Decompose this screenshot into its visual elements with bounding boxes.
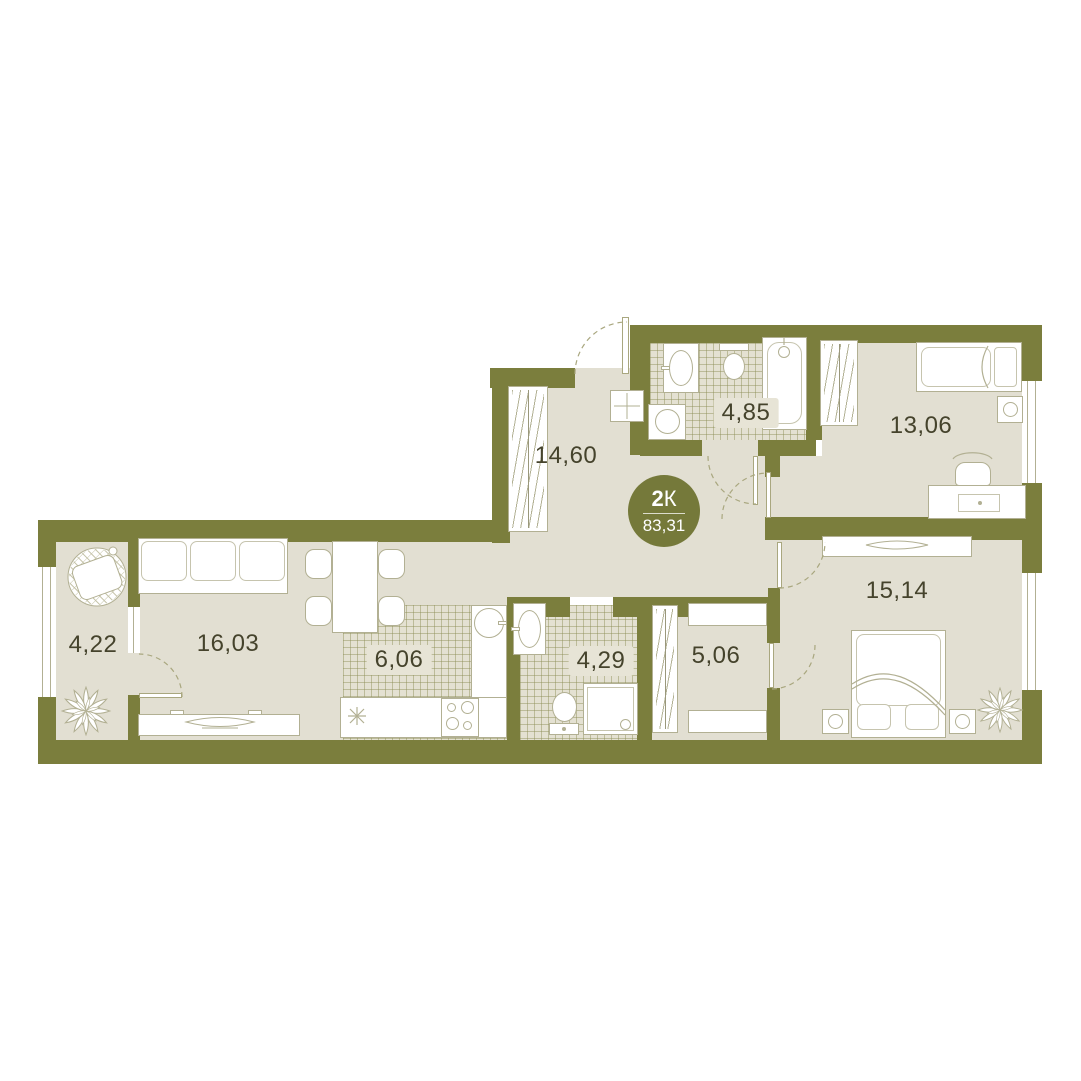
wall bbox=[767, 617, 780, 643]
floor-bedroom-top-entry bbox=[780, 456, 822, 517]
badge-divider bbox=[643, 513, 685, 514]
bed-blanket bbox=[856, 634, 941, 706]
room-area-label-bathroom-small: 4,29 bbox=[569, 646, 634, 676]
wall bbox=[38, 740, 1042, 764]
wardrobe-rail bbox=[665, 609, 666, 729]
wall bbox=[767, 688, 780, 740]
toilet-icon bbox=[552, 692, 577, 722]
desk-chair bbox=[955, 462, 991, 486]
room-area-label-living-room: 16,03 bbox=[197, 630, 260, 658]
plan-total-area: 83,31 bbox=[643, 517, 686, 536]
living-tv-stand bbox=[138, 714, 300, 736]
kitchen-tap bbox=[498, 621, 507, 625]
washing-machine-drum bbox=[655, 409, 680, 434]
dining-chair bbox=[378, 549, 405, 579]
stove-burner bbox=[446, 717, 459, 730]
room-area-label-balcony: 4,22 bbox=[69, 631, 118, 659]
plan-type-label: 2К bbox=[651, 487, 676, 511]
wardrobe-rail bbox=[839, 344, 840, 422]
closet-cabinet-top bbox=[688, 603, 767, 626]
stove-burner bbox=[461, 701, 474, 714]
plan-type-badge: 2К 83,31 bbox=[628, 475, 700, 547]
wall bbox=[640, 440, 702, 456]
nightstand-lamp bbox=[1003, 402, 1018, 417]
nightstand-lamp bbox=[828, 714, 843, 729]
wall bbox=[1022, 325, 1042, 381]
floor-bath-threshold bbox=[702, 440, 758, 456]
dining-chair bbox=[305, 549, 332, 579]
toilet-button bbox=[562, 727, 566, 731]
room-area-label-bedroom-top: 13,06 bbox=[890, 412, 953, 440]
closet-door-leaf bbox=[769, 643, 774, 688]
bedroom-bottom-door-leaf bbox=[777, 542, 782, 588]
room-area-label-hallway: 14,60 bbox=[535, 442, 598, 470]
bathroom-main-door-leaf bbox=[753, 456, 758, 505]
desk-knob bbox=[978, 501, 982, 505]
sofa-cushion bbox=[190, 541, 236, 581]
stove-burner bbox=[463, 721, 472, 730]
room-area-label-bathroom-main: 4,85 bbox=[714, 398, 779, 428]
sink-icon bbox=[669, 350, 693, 386]
bed-pillow bbox=[905, 704, 939, 730]
wardrobe-rail bbox=[528, 390, 529, 528]
window-balcony-partition bbox=[128, 607, 140, 653]
sofa-cushion bbox=[141, 541, 187, 581]
window-bedroom-bottom bbox=[1022, 573, 1042, 690]
balcony-door-leaf bbox=[139, 693, 182, 698]
dining-table bbox=[332, 541, 378, 633]
nightstand-lamp bbox=[955, 714, 970, 729]
closet-cabinet-bottom bbox=[688, 710, 767, 733]
dining-chair bbox=[378, 596, 405, 626]
window-balcony bbox=[37, 567, 56, 697]
bathtub-faucet bbox=[778, 346, 790, 358]
sink-icon bbox=[518, 610, 541, 648]
bed-pillow bbox=[994, 347, 1017, 387]
bed-blanket bbox=[921, 347, 991, 387]
bedroom-top-wardrobe bbox=[820, 340, 858, 426]
sink-tap bbox=[511, 627, 520, 631]
stove-burner bbox=[447, 703, 456, 712]
closet-wardrobe bbox=[652, 605, 678, 733]
wall bbox=[38, 697, 56, 740]
floor-plan: 14,60 4,85 13,06 4,22 16,03 6,06 4,29 5,… bbox=[0, 0, 1081, 1081]
room-area-label-kitchen: 6,06 bbox=[367, 645, 432, 675]
toilet-tank bbox=[719, 343, 749, 351]
dining-chair bbox=[305, 596, 332, 626]
hallway-console bbox=[610, 390, 644, 422]
room-area-label-bedroom-bottom: 15,14 bbox=[866, 577, 929, 605]
shower-drain bbox=[620, 719, 631, 730]
wall bbox=[637, 605, 652, 740]
sink-tap bbox=[661, 366, 670, 370]
bedroom-bottom-tv-stand bbox=[822, 536, 972, 557]
sofa-cushion bbox=[239, 541, 285, 581]
wall bbox=[490, 368, 575, 388]
bedroom-top-door-leaf bbox=[766, 472, 771, 518]
entrance-door-arc bbox=[575, 322, 627, 374]
toilet-icon bbox=[723, 353, 745, 380]
window-bedroom-top bbox=[1022, 381, 1042, 483]
room-area-label-closet-hall: 5,06 bbox=[692, 642, 741, 670]
kitchen-counter-bottom bbox=[340, 697, 507, 738]
entrance-door-leaf bbox=[622, 317, 629, 374]
bed-pillow bbox=[857, 704, 891, 730]
